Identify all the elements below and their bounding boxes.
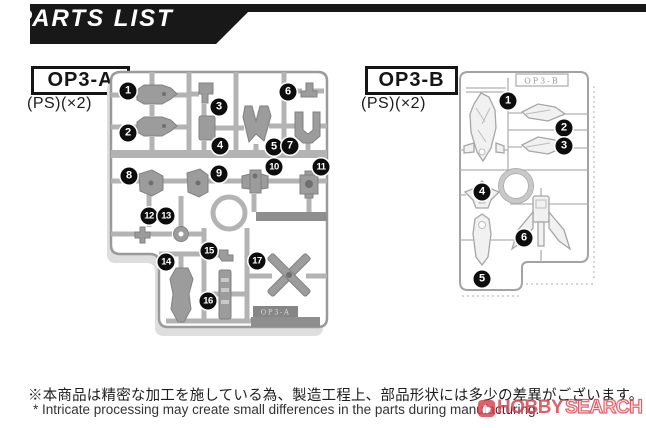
part-callout-3: 3: [556, 138, 573, 155]
runner-a-bottom-bar: [251, 317, 320, 327]
part-callout-7: 7: [282, 138, 299, 155]
disclaimer-english: * Intricate processing may create small …: [33, 402, 539, 417]
part-callout-6: 6: [516, 230, 533, 247]
runner-a-dark-bar: [256, 212, 327, 221]
part-callout-16: 16: [200, 293, 217, 310]
part-callout-11: 11: [313, 159, 330, 176]
part-callout-12: 12: [141, 208, 158, 225]
part-callout-10: 10: [266, 159, 283, 176]
part-callout-9: 9: [211, 166, 228, 183]
hobbysearch-brand-search: SEARCH: [565, 397, 642, 419]
part-callout-8: 8: [121, 168, 138, 185]
hobbysearch-logo-icon: [478, 400, 495, 417]
part-callout-4: 4: [212, 138, 229, 155]
part-callout-1: 1: [500, 93, 517, 110]
part-callout-15: 15: [201, 243, 218, 260]
part-callout-5: 5: [474, 271, 491, 288]
part-callout-14: 14: [158, 254, 175, 271]
part-callout-5: 5: [266, 139, 283, 156]
runner-b-material: (PS)(×2): [361, 95, 426, 113]
part-callout-13: 13: [158, 208, 175, 225]
runner-a-molded-tag: OP3-A: [261, 309, 291, 317]
hobbysearch-brand-hobby: HOBBY: [497, 397, 563, 419]
part-callout-1: 1: [120, 83, 137, 100]
part-callout-17: 17: [249, 253, 266, 270]
runner-b-diagram: OP3-B 123456: [452, 64, 646, 304]
runner-b-molded-tag: OP3-B: [524, 77, 560, 86]
part-callout-3: 3: [211, 99, 228, 116]
hobbysearch-watermark: HOBBY SEARCH: [478, 397, 642, 419]
runner-a-gate-hole: [213, 197, 245, 229]
part-callout-6: 6: [280, 84, 297, 101]
runner-b-gate-hole: [501, 171, 531, 201]
page-title: PARTS LIST: [16, 5, 174, 33]
part-callout-2: 2: [120, 125, 137, 142]
runner-a-material: (PS)(×2): [27, 95, 92, 113]
part-callout-4: 4: [474, 184, 491, 201]
part-callout-2: 2: [556, 120, 573, 137]
parts-list-page: PARTS LIST OP3-A (PS)(×2) OP3-B (PS)(×2): [0, 0, 646, 428]
runner-b-label: OP3-B: [365, 66, 458, 95]
runner-a-diagram: OP3-A 1234567891011121314151617: [104, 64, 350, 344]
